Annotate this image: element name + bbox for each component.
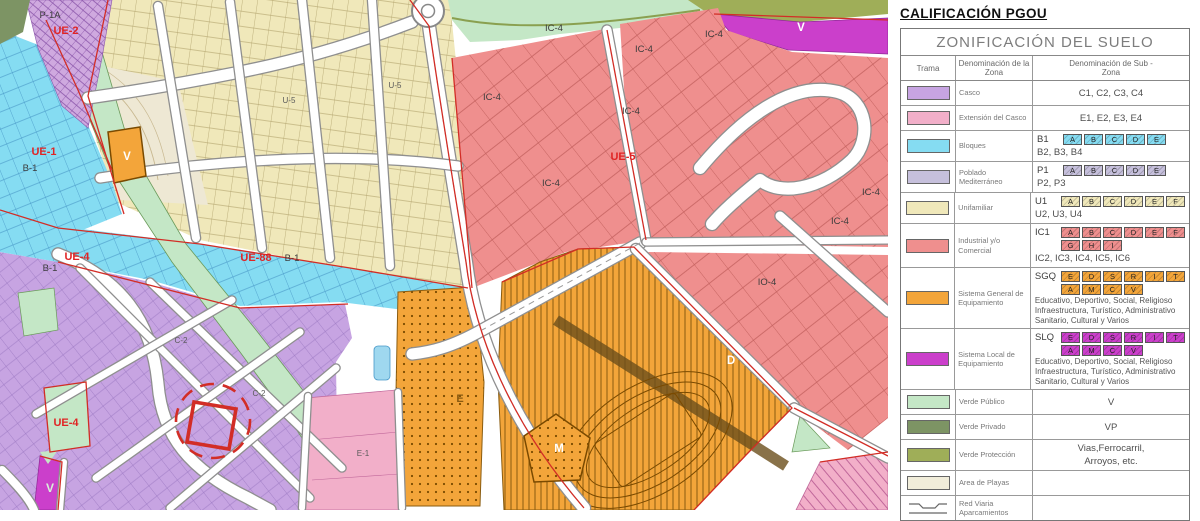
zoning-map: P-1AUE-2UE-1B-1B-1UE-4UE-88B-1UE-4C-2C-2… xyxy=(0,0,888,510)
legend-subzone-chip: F xyxy=(1166,196,1185,207)
legend-subzone-chip: F xyxy=(1166,227,1185,238)
legend-subzone-cell: SLQEDSRITAMCVEducativo, Deportivo, Socia… xyxy=(1031,329,1189,389)
map-label: P-1A xyxy=(39,10,61,21)
map-label: IC-4 xyxy=(831,216,849,227)
legend-subzone-chip: B xyxy=(1084,165,1103,176)
map-label: IC-4 xyxy=(483,92,501,103)
street xyxy=(646,240,888,242)
map-label: UE-4 xyxy=(64,251,90,263)
legend-subzone-chip: M xyxy=(1082,284,1101,295)
map-label: C-2 xyxy=(175,336,188,345)
legend-subzone-cell: E1, E2, E3, E4 xyxy=(1033,106,1189,130)
legend-zone-name: Red Viaria Aparcamientos xyxy=(956,496,1033,520)
legend-subzone-code: B1 xyxy=(1037,134,1058,145)
legend-note-line: Educativo, Deportivo, Social, Religioso xyxy=(1035,296,1185,306)
street xyxy=(398,392,402,508)
road-profile-icon xyxy=(906,499,950,517)
legend-swatch-casco xyxy=(907,86,950,100)
legend-swatch-cell xyxy=(901,106,956,130)
legend-swatch-cell xyxy=(901,440,956,470)
legend-subzone-chip: D xyxy=(1124,196,1143,207)
pool xyxy=(374,346,390,380)
legend-swatch-cell xyxy=(901,193,955,223)
zoning-map-canvas: P-1AUE-2UE-1B-1B-1UE-4UE-88B-1UE-4C-2C-2… xyxy=(0,0,888,510)
legend-subzone-chip: B xyxy=(1082,196,1101,207)
legend-row-verde_privado: Verde PrivadoVP xyxy=(901,415,1189,440)
map-label: E xyxy=(456,393,463,405)
legend-row-casco: CascoC1, C2, C3, C4 xyxy=(901,81,1189,106)
legend-subzone-text: V xyxy=(1108,397,1114,408)
legend-zone-name: Verde Protección xyxy=(956,440,1033,470)
map-label: IC-4 xyxy=(862,187,880,198)
legend-swatch-cell xyxy=(901,81,956,105)
legend-swatch-cell xyxy=(901,224,955,267)
legend-subzone-cell: B1ABCDEB2, B3, B4 xyxy=(1033,131,1189,161)
legend-subzone-text: IC2, IC3, IC4, IC5, IC6 xyxy=(1035,253,1130,264)
legend-swatch-cell xyxy=(901,415,956,439)
legend-swatch-verde_privado xyxy=(907,420,950,434)
legend-zone-name: Bloques xyxy=(956,131,1033,161)
legend-swatch-verde_publico xyxy=(907,395,950,409)
legend-subzone-chip: B xyxy=(1082,227,1101,238)
map-label: B-1 xyxy=(23,163,38,174)
legend-subzone-chip: C xyxy=(1103,227,1122,238)
legend-subzone-chip: A xyxy=(1063,165,1082,176)
legend-subzone-line: AMCV xyxy=(1061,345,1185,356)
map-label: IC-4 xyxy=(635,44,653,55)
legend-subzone-chip: B xyxy=(1084,134,1103,145)
legend-subzone-line: Arroyos, etc. xyxy=(1037,456,1185,467)
legend-subzone-cell: VP xyxy=(1033,415,1189,439)
map-label: UE-5 xyxy=(610,151,635,163)
legend-subzone-line: C1, C2, C3, C4 xyxy=(1037,88,1185,99)
legend-subzone-code: SGQ xyxy=(1035,271,1056,282)
map-label: IC-4 xyxy=(705,29,723,40)
legend-subzone-cell: IC1ABCDEFGHIIC2, IC3, IC4, IC5, IC6 xyxy=(1031,224,1189,267)
legend-subzone-chip: T xyxy=(1166,271,1185,282)
legend-subzone-line: GHI xyxy=(1061,240,1185,251)
legend-subzone-cell xyxy=(1033,471,1189,495)
zoning-table-title: ZONIFICACIÓN DEL SUELO xyxy=(901,29,1189,56)
legend-subzone-chip: D xyxy=(1124,227,1143,238)
legend-subzone-chip: E xyxy=(1147,165,1166,176)
legend-subzone-chip: D xyxy=(1126,134,1145,145)
legend-row-industrial: Industrial y/o ComercialIC1ABCDEFGHIIC2,… xyxy=(901,224,1189,268)
legend-swatch-slq xyxy=(906,352,949,366)
legend-zone-name: Industrial y/o Comercial xyxy=(955,224,1031,267)
legend-subzone-chip: E xyxy=(1145,196,1164,207)
legend-subzone-text: E1, E2, E3, E4 xyxy=(1080,113,1142,124)
legend-row-slq: Sistema Local de EquipamientoSLQEDSRITAM… xyxy=(901,329,1189,390)
legend-subzone-cell: V xyxy=(1033,390,1189,414)
legend-subzone-chip: A xyxy=(1061,196,1080,207)
legend-subzone-code: IC1 xyxy=(1035,227,1056,238)
legend-subzone-line: IC1ABCDEF xyxy=(1035,227,1185,238)
map-label: UE-2 xyxy=(53,25,78,37)
legend-subzone-chip: D xyxy=(1082,271,1101,282)
legend-subzone-chip: A xyxy=(1061,345,1080,356)
legend-subzone-chip: S xyxy=(1103,271,1122,282)
legend-zone-name: Poblado Mediterráneo xyxy=(956,162,1033,192)
legend-subzone-cell: Vias,Ferrocarril,Arroyos, etc. xyxy=(1033,440,1189,470)
zone-verde-patch-west xyxy=(18,288,58,336)
legend-subzone-chip: V xyxy=(1124,345,1143,356)
legend-swatch-cell xyxy=(901,329,955,389)
legend-subzone-cell: SGQEDSRITAMCVEducativo, Deportivo, Socia… xyxy=(1031,268,1189,328)
legend-subzone-chip: R xyxy=(1124,332,1143,343)
legend-zone-name: Area de Playas xyxy=(956,471,1033,495)
legend-subzone-line: IC2, IC3, IC4, IC5, IC6 xyxy=(1035,253,1185,264)
legend-subzone-text: U2, U3, U4 xyxy=(1035,209,1082,220)
legend-subzone-line: P2, P3 xyxy=(1037,178,1185,189)
zoning-table: ZONIFICACIÓN DEL SUELO Trama Denominació… xyxy=(900,28,1190,521)
legend-subzone-line: E1, E2, E3, E4 xyxy=(1037,113,1185,124)
legend-row-sgq: Sistema General de EquipamientoSGQEDSRIT… xyxy=(901,268,1189,329)
map-label: B-1 xyxy=(285,253,300,264)
legend-zone-name: Sistema Local de Equipamiento xyxy=(955,329,1031,389)
map-label: UE-88 xyxy=(240,252,271,264)
legend-note-line: Infraestructura, Turístico, Administrati… xyxy=(1035,306,1185,316)
legend-subzone-chip: S xyxy=(1103,332,1122,343)
legend-subzone-chip: H xyxy=(1082,240,1101,251)
map-label: IO-4 xyxy=(758,277,776,288)
legend-heading: CALIFICACIÓN PGOU xyxy=(900,6,1192,21)
legend-note-line: Infraestructura, Turístico, Administrati… xyxy=(1035,367,1185,377)
map-label: V xyxy=(797,22,805,34)
legend-zone-name: Sistema General de Equipamiento xyxy=(955,268,1031,328)
legend-subzone-chip: T xyxy=(1166,332,1185,343)
legend-subzone-chip: I xyxy=(1145,271,1164,282)
legend-subzone-chip: I xyxy=(1145,332,1164,343)
legend-row-unifamiliar: UnifamiliarU1ABCDEFU2, U3, U4 xyxy=(901,193,1189,224)
legend-subzone-line: SGQEDSRIT xyxy=(1035,271,1185,282)
legend-subzone-chip: D xyxy=(1082,332,1101,343)
legend-subzone-chip: D xyxy=(1126,165,1145,176)
legend-subzone-chip: C xyxy=(1103,284,1122,295)
column-header-zona: Denominación de la Zona xyxy=(956,56,1033,80)
legend-row-red_viaria: Red Viaria Aparcamientos xyxy=(901,496,1189,520)
legend-zone-name: Verde Público xyxy=(956,390,1033,414)
legend-subzone-line: B1ABCDE xyxy=(1037,134,1185,145)
legend-swatch-bloques xyxy=(907,139,950,153)
legend-subzone-code: P1 xyxy=(1037,165,1058,176)
legend-subzone-text: C1, C2, C3, C4 xyxy=(1079,88,1143,99)
legend-swatch-cell xyxy=(901,131,956,161)
legend-subzone-chip: M xyxy=(1082,345,1101,356)
legend-swatch-industrial xyxy=(906,239,949,253)
legend-swatch-cell xyxy=(901,496,956,520)
legend-subzone-line: V xyxy=(1037,397,1185,408)
legend-subzone-cell xyxy=(1033,496,1189,520)
legend-subzone-text: Vias,Ferrocarril, xyxy=(1078,443,1145,454)
legend-subzone-chip: A xyxy=(1061,227,1080,238)
legend-subzone-text: Arroyos, etc. xyxy=(1084,456,1137,467)
legend-subzone-code: U1 xyxy=(1035,196,1056,207)
legend-row-poblado: Poblado MediterráneoP1ABCDEP2, P3 xyxy=(901,162,1189,193)
legend-subzone-line: U1ABCDEF xyxy=(1035,196,1185,207)
legend-swatch-cell xyxy=(901,390,956,414)
legend-subzone-line: P1ABCDE xyxy=(1037,165,1185,176)
legend-note-line: Sanitario, Cultural y Varios xyxy=(1035,316,1185,326)
legend-subzone-chip: R xyxy=(1124,271,1143,282)
map-label: V xyxy=(46,481,54,495)
legend-row-extension: Extensión del CascoE1, E2, E3, E4 xyxy=(901,106,1189,131)
legend-subzone-cell: C1, C2, C3, C4 xyxy=(1033,81,1189,105)
legend-subzone-chip: A xyxy=(1061,284,1080,295)
legend-zone-name: Casco xyxy=(956,81,1033,105)
roundabout xyxy=(412,0,444,27)
legend-subzone-chip: A xyxy=(1063,134,1082,145)
column-header-subzona: Denominación de Sub -Zona xyxy=(1033,56,1189,80)
legend-rows: CascoC1, C2, C3, C4Extensión del CascoE1… xyxy=(901,81,1189,520)
legend-subzone-text: B2, B3, B4 xyxy=(1037,147,1082,158)
column-header-trama: Trama xyxy=(901,56,956,80)
legend-zone-name: Unifamiliar xyxy=(955,193,1031,223)
legend-subzone-line: VP xyxy=(1037,422,1185,433)
map-label: M xyxy=(554,443,564,455)
legend-swatch-cell xyxy=(901,471,956,495)
legend-panel: CALIFICACIÓN PGOU ZONIFICACIÓN DEL SUELO… xyxy=(888,0,1200,510)
legend-subzone-cell: U1ABCDEFU2, U3, U4 xyxy=(1031,193,1189,223)
legend-subzone-cell: P1ABCDEP2, P3 xyxy=(1033,162,1189,192)
map-label: V xyxy=(123,151,131,163)
map-label: B-1 xyxy=(43,263,58,274)
legend-subzone-line: Vias,Ferrocarril, xyxy=(1037,443,1185,454)
map-label: UE-4 xyxy=(53,417,79,429)
legend-row-playas: Area de Playas xyxy=(901,471,1189,496)
map-label: IC-4 xyxy=(622,106,640,117)
map-label: U-5 xyxy=(389,81,402,90)
legend-swatch-verde_proteccion xyxy=(907,448,950,462)
legend-subzone-chip: E xyxy=(1145,227,1164,238)
legend-swatch-sgq xyxy=(906,291,949,305)
map-label: E-1 xyxy=(357,449,370,458)
legend-subzone-line: B2, B3, B4 xyxy=(1037,147,1185,158)
legend-subzone-text: P2, P3 xyxy=(1037,178,1066,189)
map-label: UE-1 xyxy=(31,146,56,158)
legend-swatch-cell xyxy=(901,268,955,328)
legend-subzone-line: U2, U3, U4 xyxy=(1035,209,1185,220)
legend-subzone-chip: E xyxy=(1061,332,1080,343)
legend-swatch-unifamiliar xyxy=(906,201,949,215)
legend-subzone-chip: C xyxy=(1103,345,1122,356)
legend-note-line: Educativo, Deportivo, Social, Religioso xyxy=(1035,357,1185,367)
legend-subzone-chip: I xyxy=(1103,240,1122,251)
legend-swatch-cell xyxy=(901,162,956,192)
legend-subzone-chip: C xyxy=(1105,165,1124,176)
map-label: IC-4 xyxy=(545,23,563,34)
legend-subzone-chip: G xyxy=(1061,240,1080,251)
legend-zone-name: Extensión del Casco xyxy=(956,106,1033,130)
legend-subzone-chip: C xyxy=(1105,134,1124,145)
map-label: D xyxy=(727,355,735,367)
map-label: U-5 xyxy=(283,96,296,105)
map-label: IC-4 xyxy=(542,178,560,189)
legend-subzone-chip: V xyxy=(1124,284,1143,295)
legend-subzone-chip: E xyxy=(1061,271,1080,282)
legend-zone-name: Verde Privado xyxy=(956,415,1033,439)
legend-subzone-line: AMCV xyxy=(1061,284,1185,295)
legend-swatch-extension xyxy=(907,111,950,125)
zoning-table-header: Trama Denominación de la Zona Denominaci… xyxy=(901,56,1189,81)
map-label: C-2 xyxy=(253,389,266,398)
legend-row-bloques: BloquesB1ABCDEB2, B3, B4 xyxy=(901,131,1189,162)
legend-subzone-line: SLQEDSRIT xyxy=(1035,332,1185,343)
legend-subzone-chip: E xyxy=(1147,134,1166,145)
legend-row-verde_proteccion: Verde ProtecciónVias,Ferrocarril,Arroyos… xyxy=(901,440,1189,471)
legend-note-line: Sanitario, Cultural y Varios xyxy=(1035,377,1185,387)
legend-row-verde_publico: Verde PúblicoV xyxy=(901,390,1189,415)
legend-subzone-code: SLQ xyxy=(1035,332,1056,343)
legend-swatch-playas xyxy=(907,476,950,490)
legend-subzone-chip: C xyxy=(1103,196,1122,207)
legend-swatch-poblado xyxy=(907,170,950,184)
legend-subzone-text: VP xyxy=(1105,422,1118,433)
